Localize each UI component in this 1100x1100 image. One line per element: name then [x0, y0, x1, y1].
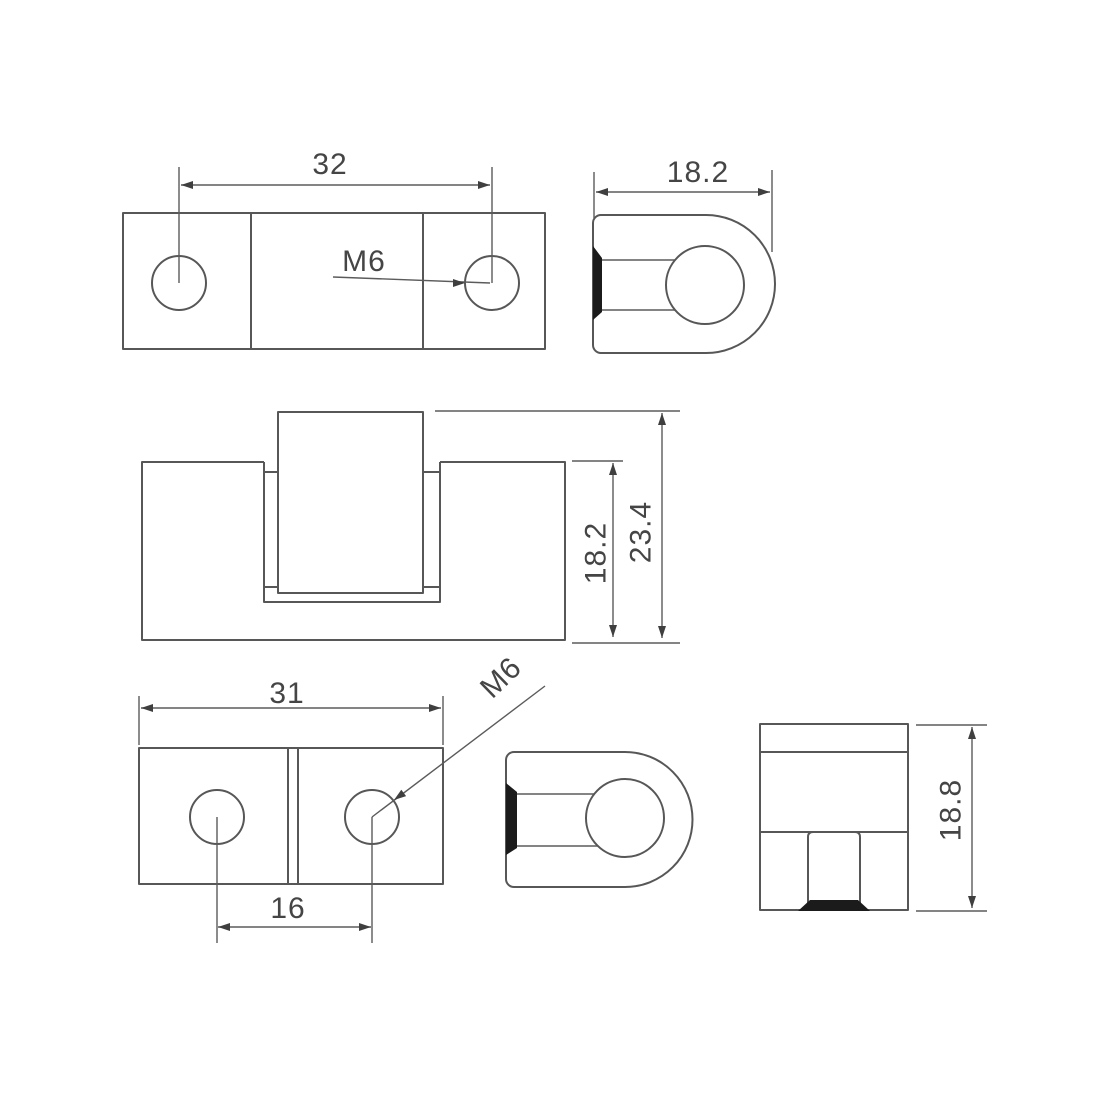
arrowhead — [141, 704, 153, 712]
arrowhead — [429, 704, 441, 712]
bottom-end-view — [506, 752, 693, 887]
front-view: 18.2 23.4 — [142, 411, 680, 643]
arrowhead — [181, 181, 193, 189]
arrowhead — [658, 413, 666, 425]
arrowhead — [758, 188, 770, 196]
arrowhead — [478, 181, 490, 189]
dim-label-16: 16 — [270, 892, 305, 925]
dim-label-18-2-top: 18.2 — [667, 156, 729, 189]
side-view: 18.8 — [760, 724, 987, 911]
section-fill — [593, 246, 602, 320]
dim-label-31: 31 — [269, 677, 304, 710]
bottom-plate-top-view: 31 16 M6 — [139, 651, 545, 943]
knuckle-tab-outline — [278, 412, 423, 593]
thread-label-m6-bottom: M6 — [474, 651, 528, 705]
arrowhead — [609, 625, 617, 637]
pivot-hole — [586, 779, 664, 857]
section-fill — [506, 783, 517, 855]
dim-label-23-4: 23.4 — [625, 501, 658, 563]
dim-label-32: 32 — [312, 148, 347, 181]
section-fill — [798, 900, 870, 911]
hinge-drawing-svg: 32 M6 18.2 18.2 — [0, 0, 1100, 1100]
technical-drawing-page: 32 M6 18.2 18.2 — [0, 0, 1100, 1100]
arrowhead — [359, 923, 371, 931]
arrowhead — [596, 188, 608, 196]
dim-label-18-2-front: 18.2 — [580, 522, 613, 584]
top-plate-top-view: 32 M6 — [123, 148, 545, 349]
arrowhead — [968, 727, 976, 739]
top-end-view: 18.2 — [593, 156, 775, 353]
thread-label-m6-top: M6 — [342, 245, 386, 278]
arrowhead — [218, 923, 230, 931]
arrowhead — [609, 463, 617, 475]
dim-label-18-8: 18.8 — [935, 779, 968, 841]
pivot-hole — [666, 246, 744, 324]
arrowhead — [658, 626, 666, 638]
arrowhead — [968, 896, 976, 908]
